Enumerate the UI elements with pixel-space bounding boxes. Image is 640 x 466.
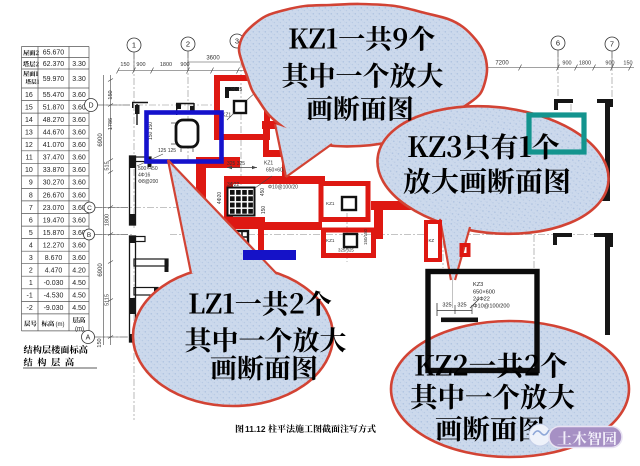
svg-text:16: 16 (25, 92, 33, 99)
svg-text:11.12: 11.12 (245, 424, 266, 434)
svg-text:65.670: 65.670 (43, 50, 65, 57)
svg-text:-0.030: -0.030 (44, 280, 64, 287)
svg-text:125 125: 125 125 (158, 148, 176, 154)
svg-text:19.470: 19.470 (43, 217, 65, 224)
svg-text:1: 1 (132, 41, 136, 50)
svg-text:4.50: 4.50 (72, 293, 86, 300)
svg-text:6900: 6900 (98, 133, 104, 147)
svg-text:KZ: KZ (429, 238, 435, 243)
svg-text:B: B (87, 232, 91, 239)
svg-text:3Φ22: 3Φ22 (227, 182, 240, 188)
svg-text:51.870: 51.870 (43, 104, 65, 111)
svg-text:3.60: 3.60 (72, 92, 86, 99)
svg-text:5: 5 (29, 230, 33, 237)
svg-text:4.50: 4.50 (72, 280, 86, 287)
svg-text:KZ1: KZ1 (326, 201, 335, 206)
svg-text:(m): (m) (75, 326, 84, 332)
svg-text:150: 150 (97, 338, 103, 347)
svg-text:1800: 1800 (579, 61, 591, 67)
svg-text:150: 150 (120, 62, 129, 68)
svg-text:515: 515 (105, 161, 111, 170)
svg-text:325: 325 (442, 303, 451, 309)
svg-text:4Φ20: 4Φ20 (217, 192, 223, 205)
svg-text:450: 450 (260, 188, 266, 197)
svg-text:3.60: 3.60 (72, 255, 86, 262)
svg-text:150 150: 150 150 (148, 122, 154, 140)
svg-text:-2: -2 (27, 305, 33, 312)
svg-text:14: 14 (25, 117, 33, 124)
svg-text:A: A (86, 335, 91, 342)
svg-text:1: 1 (29, 280, 33, 287)
svg-text:3.60: 3.60 (72, 217, 86, 224)
svg-text:41.070: 41.070 (43, 142, 65, 149)
svg-text:Φ10@100/20: Φ10@100/20 (268, 185, 298, 191)
svg-text:23.070: 23.070 (43, 205, 65, 212)
svg-text:6: 6 (29, 217, 33, 224)
svg-text:55.470: 55.470 (43, 92, 65, 99)
svg-text:3.60: 3.60 (72, 117, 86, 124)
svg-text:900: 900 (562, 61, 571, 67)
svg-text:8: 8 (29, 192, 33, 199)
svg-text:-9.030: -9.030 (44, 305, 64, 312)
svg-text:37.470: 37.470 (43, 155, 65, 162)
svg-text:44.670: 44.670 (43, 130, 65, 137)
svg-text:4.20: 4.20 (72, 268, 86, 275)
svg-text:6: 6 (556, 39, 560, 48)
svg-text:26.670: 26.670 (43, 192, 65, 199)
svg-text:11: 11 (25, 155, 32, 162)
svg-text:62.370: 62.370 (43, 61, 65, 68)
svg-text:7200: 7200 (495, 61, 509, 67)
svg-text:3Φ25: 3Φ25 (230, 87, 243, 93)
svg-text:7: 7 (29, 205, 33, 212)
svg-text:3.60: 3.60 (72, 130, 86, 137)
svg-text:33.870: 33.870 (43, 167, 65, 174)
svg-text:15: 15 (25, 104, 33, 111)
svg-text:3.30: 3.30 (72, 76, 86, 83)
svg-text:150: 150 (108, 90, 114, 99)
svg-text:-4.530: -4.530 (44, 293, 64, 300)
svg-text:D: D (88, 103, 93, 110)
svg-text:900: 900 (605, 61, 614, 67)
svg-text:KZ1: KZ1 (326, 238, 335, 243)
svg-text:3.60: 3.60 (72, 142, 86, 149)
svg-text:7: 7 (610, 40, 614, 49)
svg-text:3.60: 3.60 (72, 155, 86, 162)
svg-text:1786: 1786 (108, 118, 114, 130)
svg-text:150: 150 (623, 61, 632, 67)
svg-text:1800: 1800 (160, 62, 172, 68)
svg-text:12: 12 (25, 142, 33, 149)
svg-text:Φ8@200: Φ8@200 (138, 179, 158, 185)
svg-text:59.970: 59.970 (43, 76, 65, 83)
svg-text:3.60: 3.60 (72, 104, 86, 111)
svg-text:3600: 3600 (206, 56, 220, 62)
svg-text:325/325: 325/325 (338, 248, 354, 253)
svg-text:-1: -1 (27, 293, 33, 300)
svg-text:10: 10 (25, 167, 33, 174)
svg-text:650×600: 650×600 (473, 290, 495, 296)
svg-text:3.60: 3.60 (72, 242, 86, 249)
svg-text:13: 13 (25, 130, 33, 137)
svg-text:3.30: 3.30 (72, 61, 86, 68)
svg-text:4Φ16: 4Φ16 (138, 173, 151, 179)
svg-text:3.60: 3.60 (72, 167, 86, 174)
svg-text:3.60: 3.60 (72, 192, 86, 199)
svg-text:9: 9 (29, 180, 33, 187)
svg-text:650×600: 650×600 (266, 168, 286, 174)
svg-text:6900: 6900 (98, 263, 104, 277)
svg-text:325 325: 325 325 (227, 161, 245, 167)
svg-text:8.670: 8.670 (45, 255, 63, 262)
svg-text:4: 4 (29, 242, 33, 249)
svg-text:C: C (87, 205, 92, 212)
svg-text:150/150: 150/150 (363, 229, 368, 245)
svg-text:900: 900 (136, 62, 145, 68)
svg-text:1800: 1800 (105, 214, 111, 226)
svg-text:15.870: 15.870 (43, 230, 65, 237)
svg-text:30.270: 30.270 (43, 180, 65, 187)
svg-text:KZ1: KZ1 (264, 161, 273, 167)
svg-text:150: 150 (261, 206, 267, 215)
svg-text:12.270: 12.270 (43, 242, 65, 249)
svg-text:(m): (m) (56, 322, 65, 328)
svg-text:24Φ22: 24Φ22 (473, 297, 490, 303)
svg-text:Φ10@100/200: Φ10@100/200 (473, 304, 510, 310)
svg-text:4.50: 4.50 (72, 305, 86, 312)
svg-text:500×450: 500×450 (138, 166, 158, 172)
svg-text:2: 2 (186, 40, 190, 49)
svg-text:3.60: 3.60 (72, 180, 86, 187)
svg-text:3: 3 (29, 255, 33, 262)
svg-text:5115: 5115 (105, 294, 111, 306)
svg-text:2: 2 (29, 268, 33, 275)
svg-text:KZ3: KZ3 (473, 282, 483, 288)
svg-text:325: 325 (457, 303, 466, 309)
svg-text:4.470: 4.470 (45, 268, 63, 275)
svg-text:48.270: 48.270 (43, 117, 65, 124)
